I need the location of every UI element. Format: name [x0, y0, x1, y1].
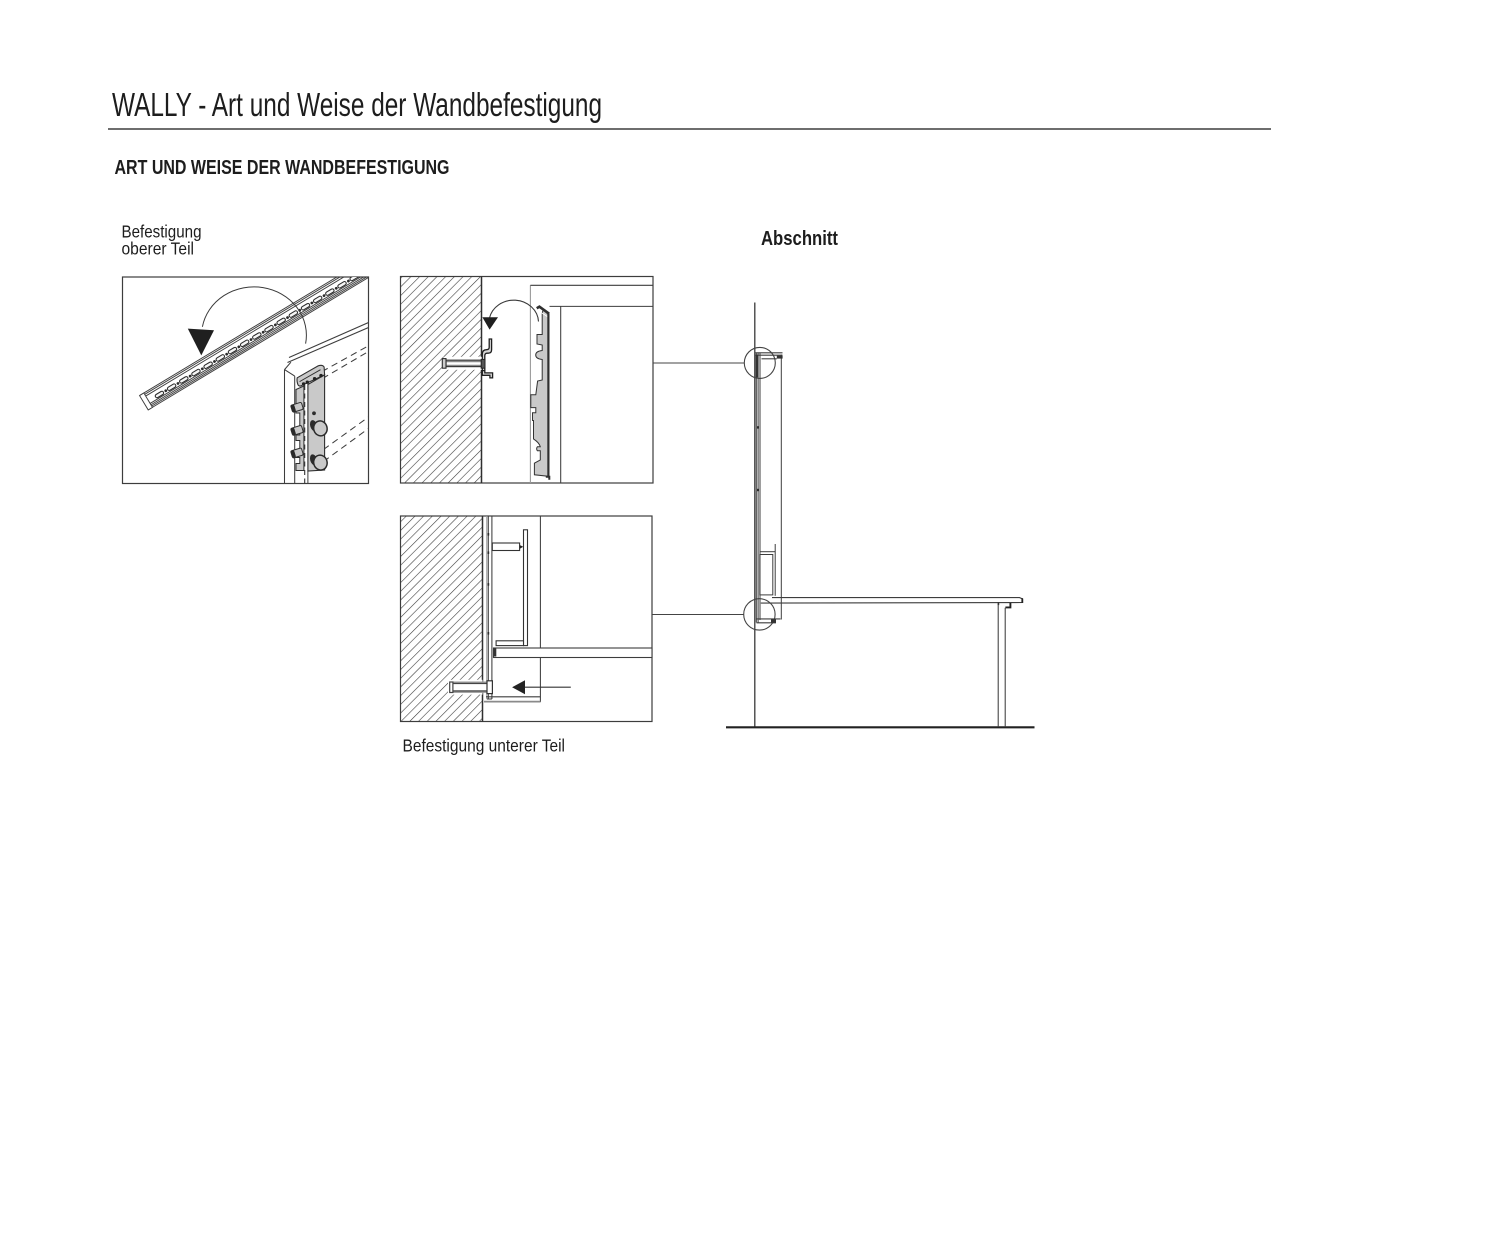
svg-text:Abschnitt: Abschnitt	[761, 228, 838, 250]
svg-text:ART UND WEISE DER WANDBEFESTIG: ART UND WEISE DER WANDBEFESTIGUNG	[115, 156, 450, 179]
svg-text:WALLY - Art und Weise der Wand: WALLY - Art und Weise der Wandbefestigun…	[112, 86, 602, 123]
svg-text:oberer Teil: oberer Teil	[122, 239, 195, 259]
svg-text:Befestigung unterer Teil: Befestigung unterer Teil	[403, 736, 566, 756]
